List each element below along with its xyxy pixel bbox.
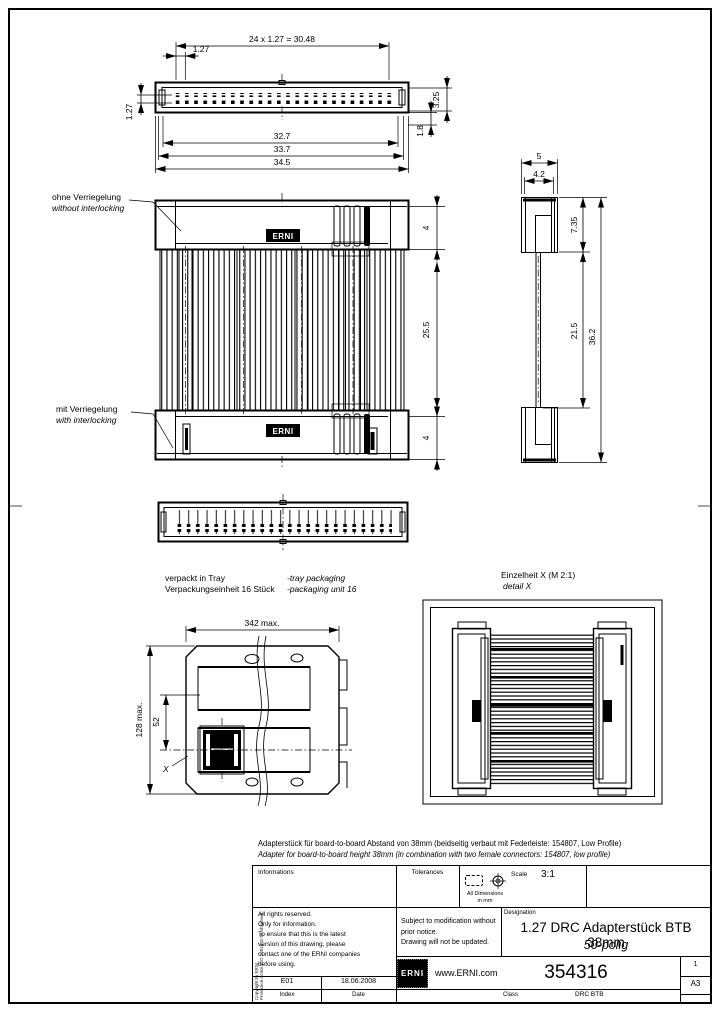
label-no-lock-en: without interlocking [52,203,125,213]
dim-body: 25.5 [421,321,431,338]
dim-side-total: 36.2 [587,328,597,345]
scale-value: 3:1 [541,869,555,880]
website-text: www.ERNI.com [435,968,498,978]
class-label: Class [503,992,518,998]
part-description: Adapterstück für board-to-board Abstand … [258,838,695,860]
projection-symbol-icon [489,872,507,890]
detail-x-view [423,600,662,804]
erni-molded-logo-bottom: ERNI [272,427,293,436]
titleblock-divider [396,956,711,957]
scale-label: Scale [511,871,527,878]
rights-note: All rights reserved. Only for informatio… [258,910,360,970]
index-label: Index [253,992,321,998]
dim-row-pitch: 1.27 [124,103,134,120]
erni-logo-text: ERNI [401,969,424,978]
dim-width-mid: 33.7 [274,144,291,154]
date-value: 18.06.2008 [321,978,396,985]
drawing-sheet: 24 x 1.27 = 30.48 1.27 1.27 3.25 1.8 [0,0,720,1012]
projection-box-icon [465,875,483,886]
bottom-view [159,494,408,550]
dim-cap-top: 4 [421,225,431,230]
dim-tray-pocket: 52 [151,717,161,727]
detail-title-de: Einzelheit X (M 2:1) [501,570,575,580]
technical-drawing: 24 x 1.27 = 30.48 1.27 1.27 3.25 1.8 [0,0,720,834]
dim-pin: 1.8 [415,125,425,137]
date-label: Date [321,992,396,998]
dim-height: 3.25 [431,91,441,108]
tray-note-de-2: Verpackungseinheit 16 Stück [165,584,275,594]
titleblock-divider [680,994,711,995]
titleblock-divider [586,866,587,907]
erni-molded-logo-top: ERNI [272,232,293,241]
designation-subtitle: 50-polig [501,938,711,952]
dim-pitch: 1.27 [193,44,210,54]
dim-cap-bottom: 4 [421,435,431,440]
change-note: Subject to modification without prior no… [401,917,496,949]
dim-side-body: 21.5 [569,322,579,339]
label-lock-en: with interlocking [56,415,117,425]
dim-pitch-total: 24 x 1.27 = 30.48 [249,34,315,44]
dim-side-width-inner: 4.2 [533,169,545,179]
erni-logo: ERNI [397,959,428,988]
part-description-de: Adapterstück für board-to-board Abstand … [258,838,695,849]
label-lock-de: mit Verriegelung [56,404,118,414]
designation-label: Designation [504,910,536,916]
titleblock-divider [253,989,680,990]
tolerances-label: Tolerances [396,869,459,876]
top-view [156,74,409,120]
dim-tray-height: 128 max. [134,703,144,738]
tray-note-en-1: -tray packaging [287,573,345,583]
informations-label: Informations [258,869,294,876]
tray-note-de-1: verpackt in Tray [165,573,226,583]
front-view: ERNI ERNI [156,193,409,468]
label-no-lock-de: ohne Verriegelung [52,192,121,202]
detail-ref-x: X [162,764,169,774]
titleblock-divider [253,907,711,908]
dim-side-cap: 7.35 [569,216,579,233]
revision-value: E01 [253,978,321,985]
part-number: 354316 [516,962,636,984]
dim-width-inner: 32.7 [274,131,291,141]
tray-note-en-2: -packaging unit 16 [287,584,357,594]
side-view [522,198,558,463]
sheet-format: A3 [680,979,711,988]
all-dimensions-label: All Dimensions [459,891,511,897]
tray-notes: verpackt in Tray Verpackungseinheit 16 S… [165,570,575,594]
in-mm-label: in mm [459,898,511,904]
dim-side-width: 5 [537,151,542,161]
part-description-en: Adapter for board-to-board height 38mm (… [258,849,695,860]
front-view-dimensions: 4 25.5 4 [408,195,445,471]
class-value: DRC BTB [575,991,604,998]
dim-width-outer: 34.5 [274,157,291,167]
titleblock-divider [680,976,711,977]
detail-title-en: detail X [503,581,532,591]
sheet-number: 1 [680,961,711,968]
tray-view: X [160,636,352,806]
titleblock-divider [253,976,396,977]
title-block: Informations Tolerances All Dimensions i… [252,865,710,1002]
dim-tray-width: 342 max. [245,618,280,628]
